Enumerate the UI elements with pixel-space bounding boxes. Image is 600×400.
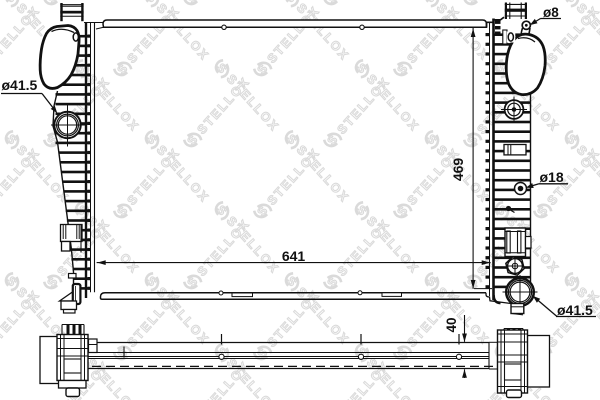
svg-text:STELLOX: STELLOX (125, 287, 183, 350)
svg-text:STELLOX: STELLOX (265, 3, 323, 66)
svg-text:STELLOX: STELLOX (125, 3, 183, 66)
svg-text:STELLOX: STELLOX (0, 356, 2, 400)
svg-text:ø18: ø18 (540, 169, 564, 185)
svg-text:STELLOX: STELLOX (195, 74, 253, 137)
svg-text:ø41.5: ø41.5 (557, 302, 593, 318)
svg-text:STELLOX: STELLOX (125, 145, 183, 208)
svg-text:STELLOX: STELLOX (195, 216, 253, 279)
svg-text:ø41.5: ø41.5 (2, 77, 38, 93)
svg-text:40: 40 (444, 317, 459, 332)
svg-text:641: 641 (282, 248, 306, 264)
svg-text:STELLOX: STELLOX (405, 3, 463, 66)
svg-text:STELLOX: STELLOX (545, 287, 600, 350)
svg-text:STELLOX: STELLOX (335, 216, 393, 279)
svg-text:STELLOX: STELLOX (335, 74, 393, 137)
svg-text:STELLOX: STELLOX (265, 145, 323, 208)
svg-text:STELLOX: STELLOX (0, 214, 2, 277)
svg-text:469: 469 (450, 158, 466, 182)
svg-text:STELLOX: STELLOX (265, 287, 323, 350)
svg-text:ø8: ø8 (543, 5, 559, 20)
